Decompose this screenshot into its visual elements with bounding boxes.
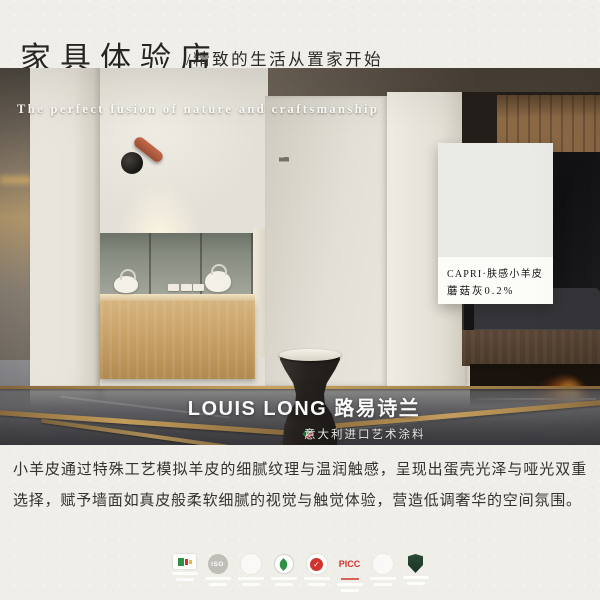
quality-check-badge [304,554,330,592]
seal-icon [373,554,393,574]
page-subtitle: /精致的生活从置家开始 [186,46,383,70]
badge-caption [209,583,227,586]
swatch-product-name: CAPRI·肤感小羊皮 [447,265,543,280]
iso-badge: ISO [205,554,231,592]
badge-caption [275,583,293,586]
badge-caption [271,577,297,580]
emission-label-icon [173,554,196,569]
badge-caption [403,576,429,579]
tea-box [193,284,204,291]
badge-caption [407,582,425,585]
drum-stool-top [279,349,341,361]
cert-seal-badge-2 [370,554,396,592]
perforated-wall [265,96,387,386]
shield-icon [408,554,423,573]
badge-caption [304,577,330,580]
perforation-grid [279,154,375,353]
badge-caption [242,583,260,586]
tea-box [181,284,192,291]
badge-caption [337,583,363,586]
showroom-photo: The perfect fusion of nature and craftsm… [0,68,600,445]
iso-icon: ISO [208,554,228,574]
badge-caption [341,589,359,592]
badge-caption [176,578,194,581]
picc-underline [341,578,359,580]
description-paragraph: 小羊皮通过特殊工艺模拟羊皮的细腻纹理与温润触感，呈现出蛋壳光泽与哑光双重选择，赋… [13,455,587,517]
badge-caption [374,583,392,586]
badge-caption [370,577,396,580]
badge-caption [205,577,231,580]
hero-tagline: The perfect fusion of nature and craftsm… [17,102,583,117]
seal-icon [241,554,261,574]
cert-seal-badge-1 [238,554,264,592]
green-shield-badge [403,554,429,592]
badge-caption [238,577,264,580]
counter-top [100,294,255,301]
tea-box [168,284,179,291]
eco-leaf-badge [271,554,297,592]
hallway-light [0,176,32,184]
poster: 家具体验店 /精致的生活从置家开始 [0,0,600,600]
check-icon [307,554,327,574]
paint-swatch-card: CAPRI·肤感小羊皮 蘑菇灰0.2% [438,143,553,304]
wall-lamp-icon [121,152,143,174]
brand-logo-block: LOUIS LONG 路易诗兰 意大利进口艺术涂料 [4,392,600,439]
leaf-icon [274,554,294,574]
paint-swatch-color [438,143,553,257]
badge-caption [308,583,326,586]
picc-badge: PICC [337,554,363,592]
teapot-right [205,271,231,292]
wood-counter [100,301,255,379]
picc-logo: PICC [337,554,363,574]
certification-badges: ISO PICC [0,554,600,592]
badge-caption [172,572,198,575]
brand-logo: LOUIS LONG 路易诗兰 [4,392,600,421]
teapot-left [114,276,138,293]
emission-label-badge [172,554,198,592]
brand-subtitle: 意大利进口艺术涂料 [304,426,426,442]
swatch-color-name: 蘑菇灰0.2% [447,283,514,298]
